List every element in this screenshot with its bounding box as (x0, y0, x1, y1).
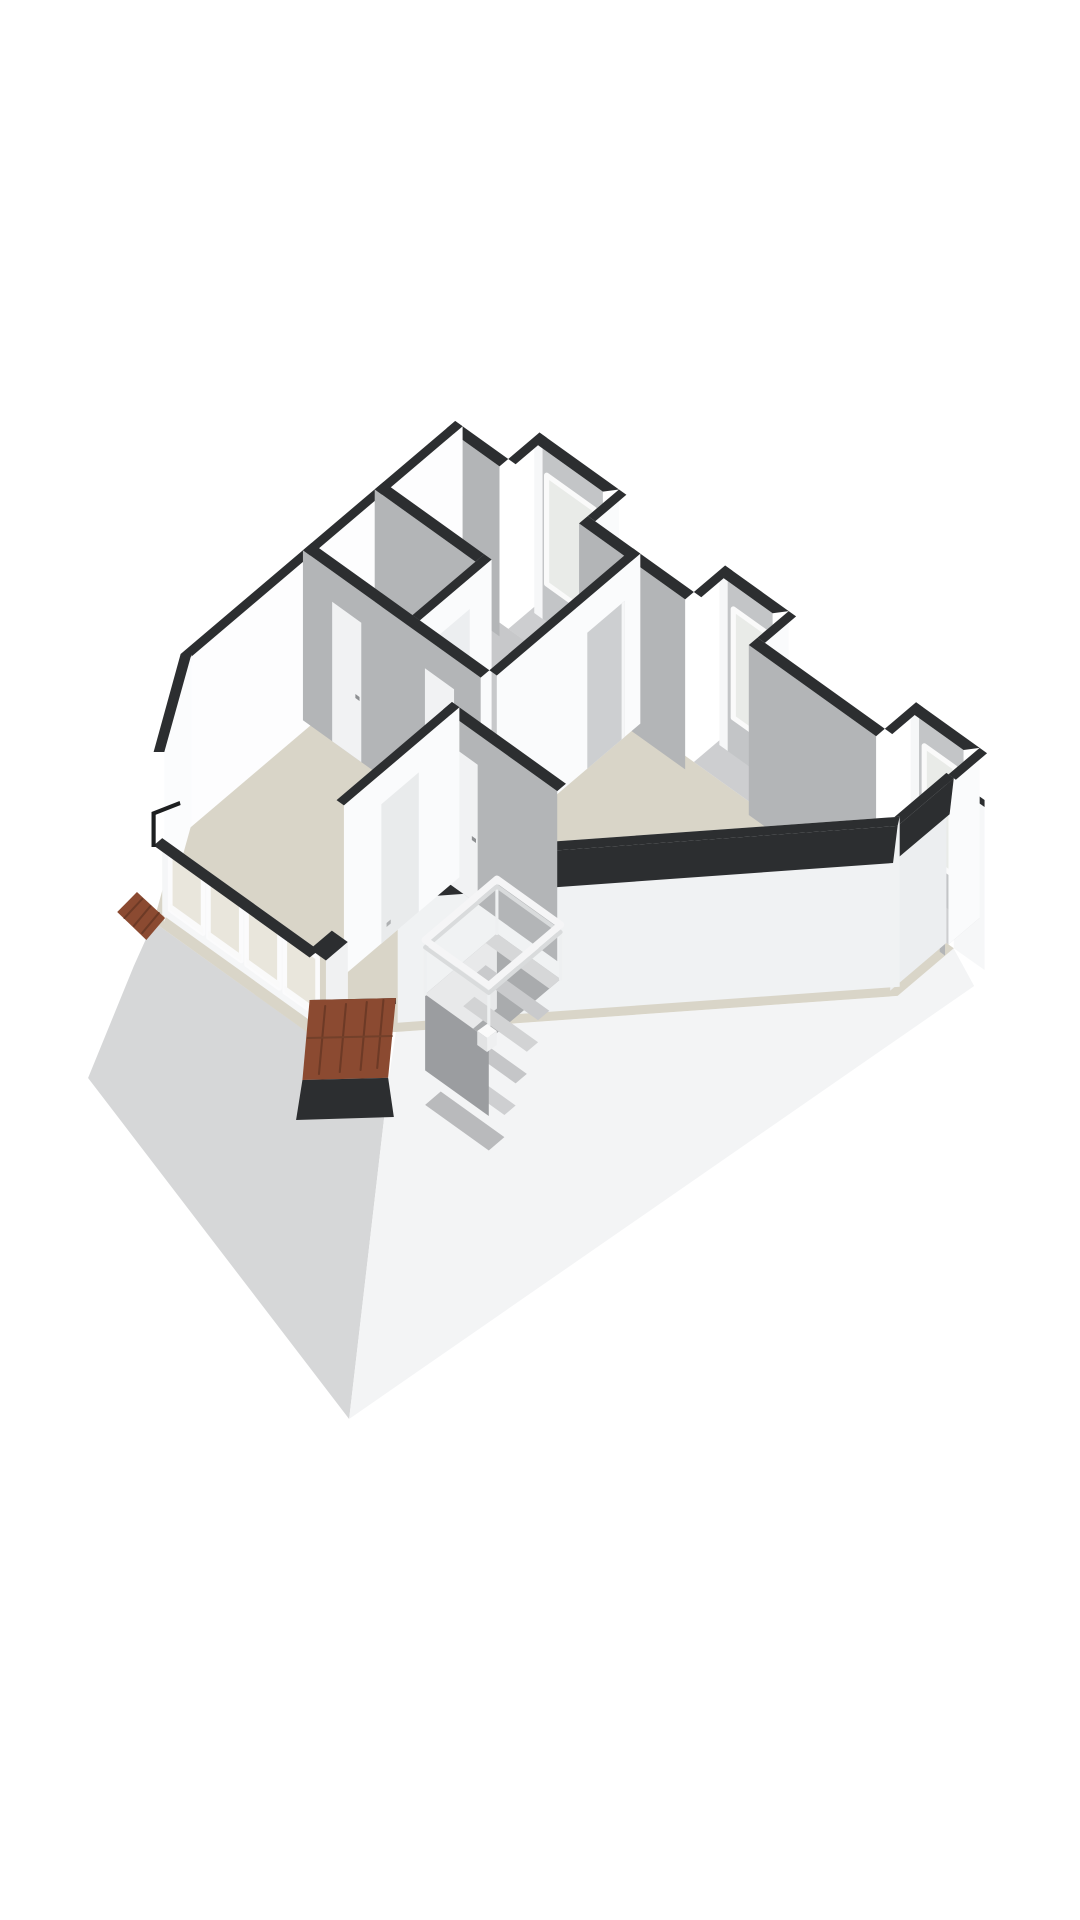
door-left-room-1 (332, 602, 361, 762)
building-group (88, 421, 987, 1419)
roof-tiles-bottom-cap (296, 1078, 394, 1120)
dormer-a-jamb (534, 440, 542, 619)
floorplan-page (0, 0, 1080, 1920)
floorplan-3d-render (0, 0, 1080, 1920)
dormer-b-jamb (719, 572, 727, 751)
doorway-jamb-edge (622, 601, 625, 740)
vent-rod-vertical (152, 812, 156, 847)
